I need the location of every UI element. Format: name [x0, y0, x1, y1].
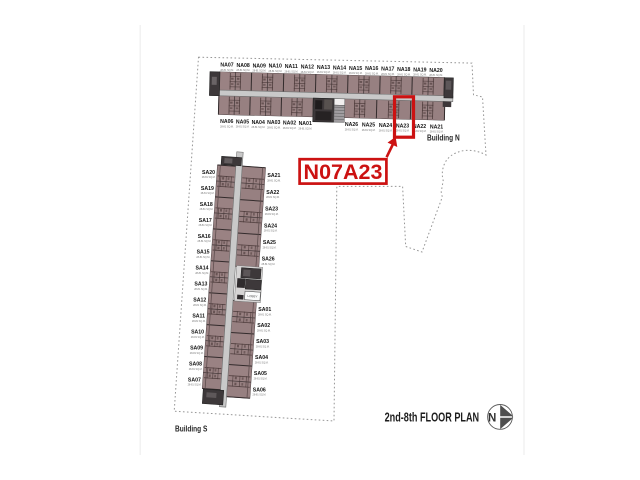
- svg-text:28-81 SQ.M.: 28-81 SQ.M.: [265, 212, 279, 216]
- svg-text:NA01: NA01: [299, 121, 312, 127]
- svg-text:N: N: [488, 412, 496, 424]
- svg-text:28-81 SQ.M.: 28-81 SQ.M.: [362, 128, 376, 132]
- svg-text:NA24: NA24: [379, 123, 392, 129]
- svg-text:28-81 SQ.M.: 28-81 SQ.M.: [196, 255, 210, 259]
- svg-text:28-81 SQ.M.: 28-81 SQ.M.: [396, 129, 410, 133]
- svg-text:SA22: SA22: [266, 190, 279, 196]
- svg-text:28-81 SQ.M.: 28-81 SQ.M.: [252, 69, 266, 73]
- svg-text:28-81 SQ.M.: 28-81 SQ.M.: [283, 126, 297, 130]
- svg-text:SA21: SA21: [267, 173, 280, 179]
- svg-text:28-81 SQ.M.: 28-81 SQ.M.: [201, 191, 215, 195]
- svg-text:NA11: NA11: [285, 64, 298, 70]
- svg-text:28-81 SQ.M.: 28-81 SQ.M.: [267, 126, 281, 130]
- svg-text:28-81 SQ.M.: 28-81 SQ.M.: [236, 125, 250, 129]
- svg-text:28-81 SQ.M.: 28-81 SQ.M.: [202, 175, 216, 179]
- svg-text:SA04: SA04: [255, 355, 268, 361]
- svg-text:28-81 SQ.M.: 28-81 SQ.M.: [261, 262, 275, 266]
- svg-text:28-81 SQ.M.: 28-81 SQ.M.: [197, 239, 211, 243]
- svg-text:NA09: NA09: [253, 63, 266, 69]
- svg-text:28-81 SQ.M.: 28-81 SQ.M.: [365, 72, 379, 76]
- svg-text:28-81 SQ.M.: 28-81 SQ.M.: [193, 303, 207, 307]
- svg-text:SA14: SA14: [196, 266, 209, 272]
- svg-text:NA15: NA15: [349, 66, 362, 72]
- svg-text:SA17: SA17: [199, 218, 212, 224]
- svg-text:Building N: Building N: [427, 133, 460, 143]
- svg-text:28-81 SQ.M.: 28-81 SQ.M.: [188, 383, 202, 387]
- svg-text:28-81 SQ.M.: 28-81 SQ.M.: [236, 68, 250, 72]
- svg-text:NA03: NA03: [267, 120, 280, 126]
- svg-text:SA07: SA07: [188, 377, 201, 383]
- svg-text:NA25: NA25: [362, 123, 375, 129]
- svg-text:SA26: SA26: [262, 257, 275, 263]
- svg-text:SA15: SA15: [197, 250, 210, 256]
- svg-text:2nd-8th FLOOR PLAN: 2nd-8th FLOOR PLAN: [385, 411, 480, 425]
- svg-text:SA23: SA23: [265, 207, 278, 213]
- svg-text:28-81 SQ.M.: 28-81 SQ.M.: [252, 393, 266, 397]
- svg-text:28-81 SQ.M.: 28-81 SQ.M.: [379, 128, 393, 132]
- svg-text:28-81 SQ.M.: 28-81 SQ.M.: [381, 72, 395, 76]
- svg-text:SA10: SA10: [191, 330, 204, 336]
- svg-text:SA08: SA08: [189, 362, 202, 368]
- svg-text:NA19: NA19: [413, 67, 426, 73]
- svg-text:NA05: NA05: [236, 119, 249, 125]
- svg-text:SA03: SA03: [256, 339, 269, 345]
- svg-text:NA10: NA10: [269, 64, 282, 70]
- svg-text:N07A23: N07A23: [304, 160, 383, 184]
- svg-text:NA13: NA13: [317, 65, 330, 71]
- svg-text:28-81 SQ.M.: 28-81 SQ.M.: [298, 126, 312, 130]
- svg-text:NA20: NA20: [429, 68, 442, 74]
- svg-text:28-81 SQ.M.: 28-81 SQ.M.: [220, 68, 234, 72]
- svg-text:28-81 SQ.M.: 28-81 SQ.M.: [301, 70, 315, 74]
- svg-text:28-81 SQ.M.: 28-81 SQ.M.: [251, 125, 265, 129]
- svg-text:28-81 SQ.M.: 28-81 SQ.M.: [345, 128, 359, 132]
- svg-text:SA05: SA05: [254, 371, 267, 377]
- svg-text:28-81 SQ.M.: 28-81 SQ.M.: [255, 361, 269, 365]
- svg-text:LOBBY: LOBBY: [247, 294, 257, 299]
- svg-text:28-81 SQ.M.: 28-81 SQ.M.: [220, 124, 234, 128]
- svg-text:SA01: SA01: [258, 307, 271, 313]
- svg-text:SA24: SA24: [264, 223, 277, 229]
- svg-text:28-81 SQ.M.: 28-81 SQ.M.: [284, 69, 298, 73]
- svg-text:28-81 SQ.M.: 28-81 SQ.M.: [397, 72, 411, 76]
- svg-text:28-81 SQ.M.: 28-81 SQ.M.: [317, 70, 331, 74]
- svg-text:NA23: NA23: [396, 123, 409, 129]
- svg-text:NA06: NA06: [220, 119, 233, 125]
- svg-text:28-81 SQ.M.: 28-81 SQ.M.: [333, 71, 347, 75]
- svg-text:NA16: NA16: [365, 66, 378, 72]
- svg-text:SA02: SA02: [257, 323, 270, 329]
- svg-text:NA17: NA17: [381, 67, 394, 73]
- svg-text:28-81 SQ.M.: 28-81 SQ.M.: [191, 335, 205, 339]
- svg-text:28-81 SQ.M.: 28-81 SQ.M.: [190, 351, 204, 355]
- svg-text:28-81 SQ.M.: 28-81 SQ.M.: [263, 245, 277, 249]
- svg-text:28-81 SQ.M.: 28-81 SQ.M.: [257, 328, 271, 332]
- svg-text:28-81 SQ.M.: 28-81 SQ.M.: [195, 271, 209, 275]
- svg-text:NA04: NA04: [252, 120, 265, 126]
- svg-text:28-81 SQ.M.: 28-81 SQ.M.: [268, 69, 282, 73]
- svg-text:28-81 SQ.M.: 28-81 SQ.M.: [264, 229, 278, 233]
- svg-text:28-81 SQ.M.: 28-81 SQ.M.: [413, 73, 427, 77]
- svg-text:SA09: SA09: [190, 346, 203, 352]
- svg-text:28-81 SQ.M.: 28-81 SQ.M.: [429, 73, 443, 77]
- svg-text:28-81 SQ.M.: 28-81 SQ.M.: [189, 367, 203, 371]
- svg-text:NA12: NA12: [301, 65, 314, 71]
- svg-text:28-81 SQ.M.: 28-81 SQ.M.: [258, 312, 272, 316]
- svg-text:28-81 SQ.M.: 28-81 SQ.M.: [199, 207, 213, 211]
- svg-text:SA19: SA19: [201, 186, 214, 192]
- svg-text:28-81 SQ.M.: 28-81 SQ.M.: [266, 195, 280, 199]
- svg-text:NA08: NA08: [236, 63, 249, 69]
- svg-text:SA06: SA06: [253, 387, 266, 393]
- svg-text:NA21: NA21: [430, 124, 443, 130]
- svg-text:SA25: SA25: [263, 240, 276, 246]
- svg-text:SA20: SA20: [202, 170, 215, 176]
- svg-text:SA12: SA12: [193, 298, 206, 304]
- svg-text:28-81 SQ.M.: 28-81 SQ.M.: [349, 71, 363, 75]
- svg-text:SA13: SA13: [194, 282, 207, 288]
- svg-text:NA26: NA26: [345, 122, 358, 128]
- svg-text:SA11: SA11: [192, 314, 205, 320]
- svg-text:NA02: NA02: [283, 121, 296, 127]
- svg-text:NA18: NA18: [397, 67, 410, 73]
- svg-text:28-81 SQ.M.: 28-81 SQ.M.: [254, 377, 268, 381]
- svg-text:NA07: NA07: [220, 63, 233, 69]
- svg-text:28-81 SQ.M.: 28-81 SQ.M.: [256, 344, 270, 348]
- svg-text:28-81 SQ.M.: 28-81 SQ.M.: [194, 287, 208, 291]
- svg-text:SA18: SA18: [200, 202, 213, 208]
- svg-text:28-81 SQ.M.: 28-81 SQ.M.: [192, 319, 206, 323]
- svg-text:28-81 SQ.M.: 28-81 SQ.M.: [267, 179, 281, 183]
- svg-text:28-81 SQ.M.: 28-81 SQ.M.: [198, 223, 212, 227]
- svg-text:SA16: SA16: [198, 234, 211, 240]
- svg-text:NA14: NA14: [333, 65, 346, 71]
- svg-text:Building S: Building S: [175, 424, 207, 434]
